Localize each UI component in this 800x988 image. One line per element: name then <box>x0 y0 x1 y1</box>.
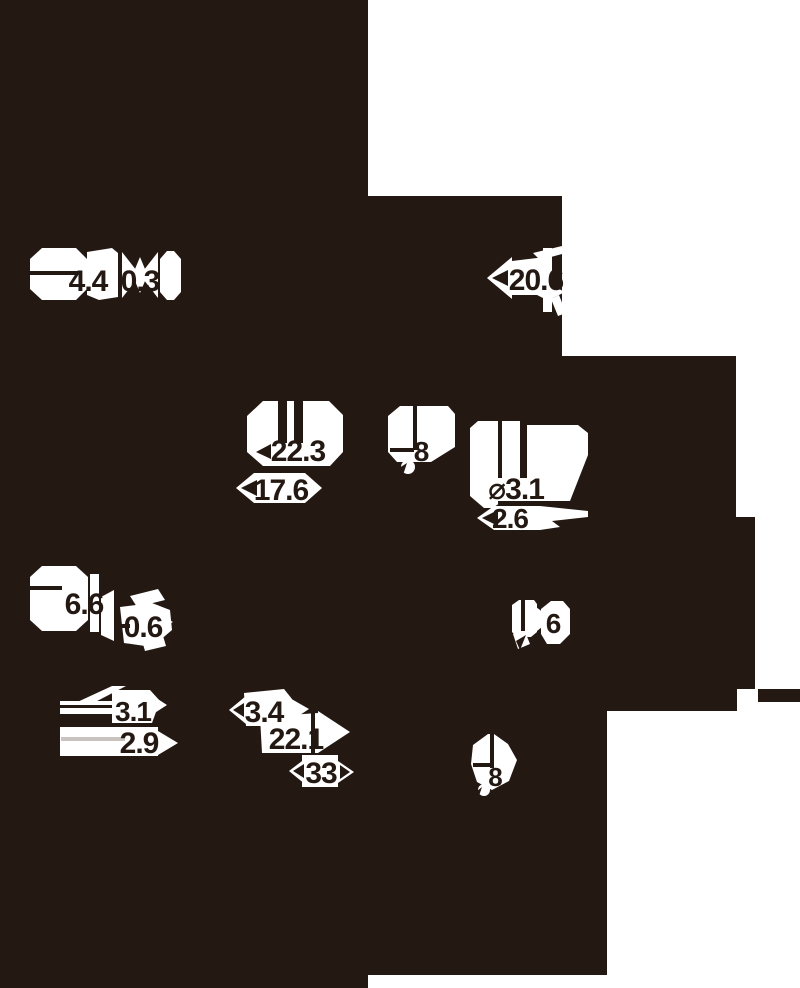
dim-label-3-1: 3.1 <box>115 696 151 727</box>
paper-region-bottom-right <box>607 689 800 988</box>
paper-fragment <box>160 251 181 300</box>
technical-drawing-silhouette: 4.4 0.3 20.6 22.3 17.6 8 <box>0 0 800 988</box>
dim-label-33: 33 <box>305 757 337 790</box>
dim-label-17-6: 17.6 <box>254 474 309 507</box>
dimension-line-muted <box>61 737 125 741</box>
dim-label-22-3: 22.3 <box>271 435 326 468</box>
paper-region-right-strip <box>755 517 800 689</box>
dimension-line <box>390 448 414 452</box>
dim-label-2-6: 2.6 <box>492 503 528 534</box>
dimension-line <box>30 586 62 590</box>
dim-label-20-6: 20.6 <box>509 264 564 297</box>
extension-line <box>521 600 525 631</box>
paper-region-bottom-strip <box>368 975 800 988</box>
dim-label-22-1: 22.1 <box>269 723 324 756</box>
dimension-line <box>60 705 112 708</box>
dim-group-dia-3-1: ⌀3.1 <box>470 421 588 513</box>
dim-label-dia-3-1: ⌀3.1 <box>488 473 544 506</box>
dim-label-0-3: 0.3 <box>121 265 160 298</box>
dim-label-6-6: 6.6 <box>65 588 104 621</box>
drawing-canvas: 4.4 0.3 20.6 22.3 17.6 8 <box>0 0 800 988</box>
dim-label-0-6: 0.6 <box>124 611 163 644</box>
dim-label-6: 6 <box>546 608 561 639</box>
dim-label-8-top: 8 <box>414 436 429 467</box>
dim-group-22-3: 22.3 <box>247 401 343 468</box>
dim-label-8-bottom: 8 <box>488 762 502 792</box>
extension-line <box>116 598 119 628</box>
dim-label-4-4: 4.4 <box>69 265 109 298</box>
dim-label-2-9: 2.9 <box>120 727 159 760</box>
